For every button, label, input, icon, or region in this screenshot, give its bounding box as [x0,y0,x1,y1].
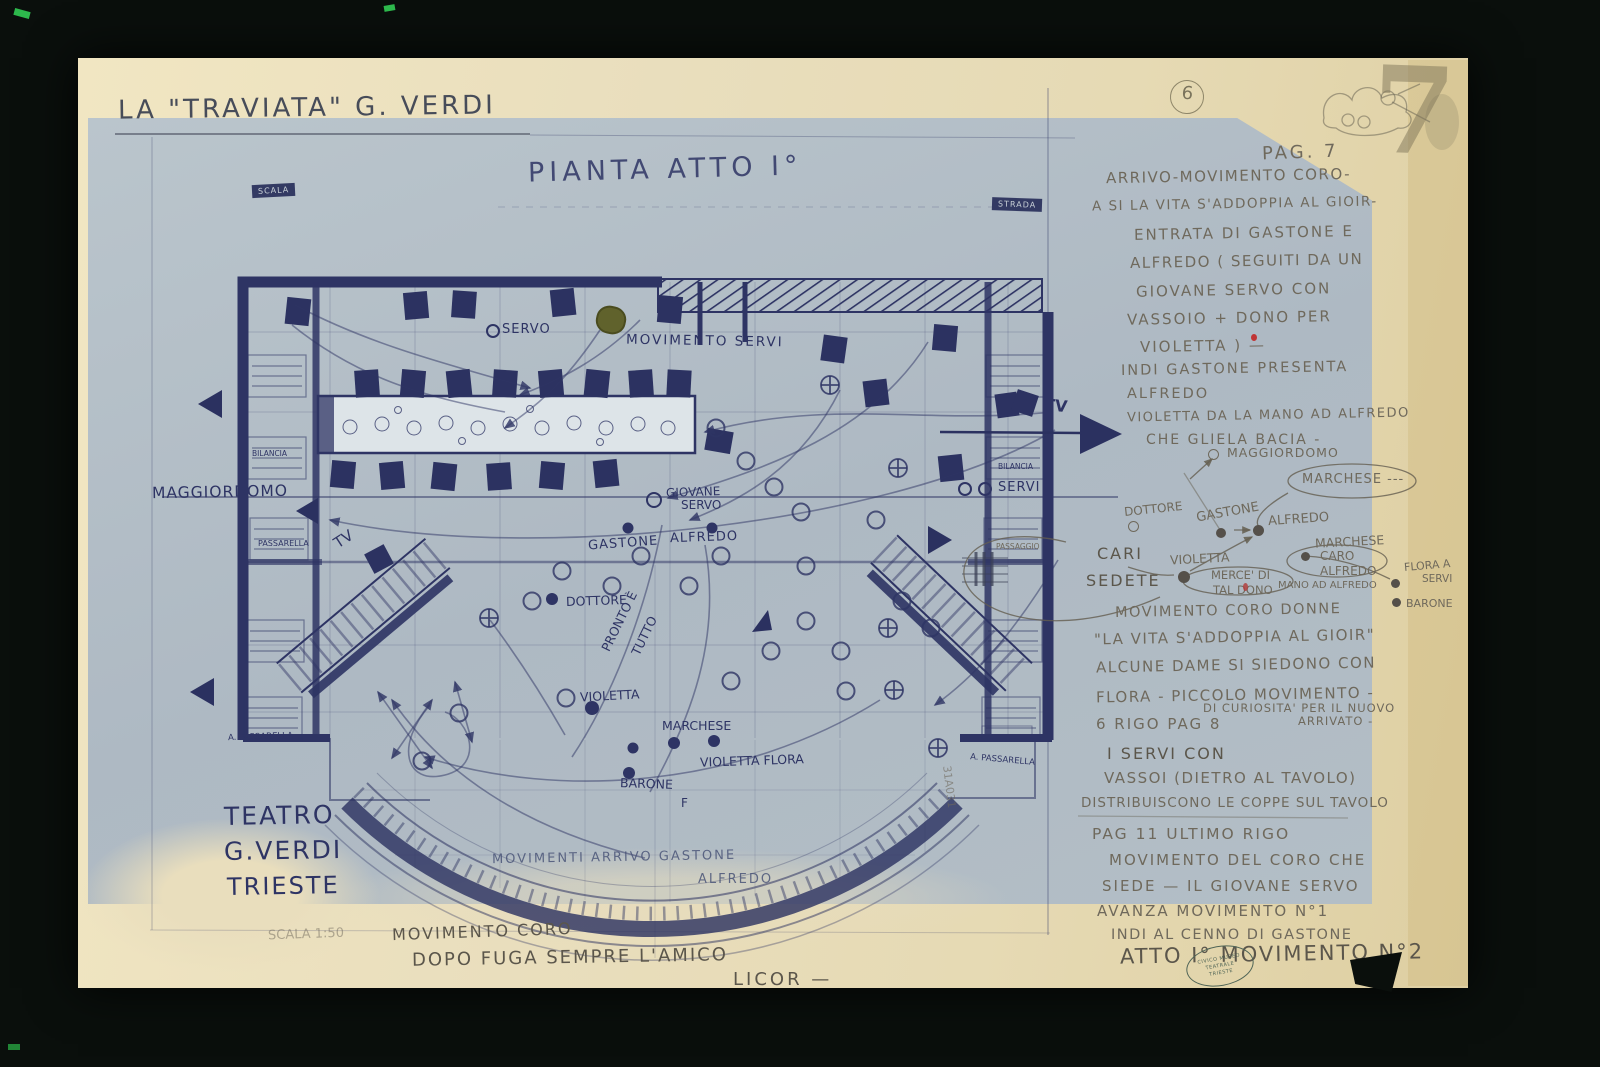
scale-note: SCALA 1:50 [268,927,344,943]
cluster-caro-1: CARO [1320,550,1354,562]
servo-ring-icon [486,324,500,338]
actor-dot-icon [1301,552,1310,561]
note-line: ENTRATA DI GASTONE E [1134,224,1354,243]
note-line: SIEDE — IL GIOVANE SERVO [1102,879,1360,894]
cluster-flora-2: SERVI [1422,574,1452,585]
note-line: ALFREDO [1127,387,1209,402]
cluster-barone: BARONE [1406,598,1453,609]
cluster-cari: CARI [1097,546,1143,562]
passarella-label: PASSARELLA [258,540,309,548]
movimento-servi-label: MOVIMENTO SERVI [626,334,784,350]
servi-ring-icon [958,482,972,496]
pag-label: PAG. 7 [1262,143,1339,164]
tv-right-label: TV [1043,397,1068,415]
plan-title: PIANTA ATTO I° [528,152,803,186]
footer-note-3: LICOR — [733,971,832,989]
bilancia-right-label: BILANCIA [998,463,1033,471]
cluster-merce-1: MERCE' DI [1211,570,1270,582]
actor-dot-icon [1216,528,1226,538]
arrivo-note-2: ALFREDO [698,873,773,886]
actor-dot-icon [1178,571,1190,583]
note-line: VASSOI (DIETRO AL TAVOLO) [1104,771,1357,786]
note-line: VIOLETTA ) — [1140,338,1266,355]
strada-label-box: STRADA [992,197,1043,212]
cluster-violetta: VIOLETTA [1170,551,1230,567]
banquet-table [318,396,695,453]
servo-label: SERVO [502,323,551,336]
actor-dot-icon [1392,598,1401,607]
bilancia-left-label: BILANCIA [252,450,287,458]
giovane-servo-label-2: SERVO [681,499,721,511]
theater-name-3: TRIESTE [227,873,340,899]
note-line: MOVIMENTO DEL CORO CHE [1109,853,1366,868]
servi-label: SERVI [998,481,1041,494]
maggiordomo-label: MAGGIORDOMO [152,484,288,502]
note-line: ALFREDO ( SEGUITI DA UN [1130,252,1364,271]
atto-movement-line: ATTO I° MOVIMENTO N°2 [1120,941,1424,967]
actor-dot-icon [1391,579,1400,588]
cluster-marchese-bubble: MARCHESE --- [1302,473,1404,486]
note-line: GIOVANE SERVO CON [1136,281,1332,299]
giovane-servo-ring-icon [646,492,662,508]
actor-ring-icon [1128,521,1139,532]
note-line: AVANZA MOVIMENTO N°1 [1097,904,1329,919]
page-title: LA "TRAVIATA" G. VERDI [118,92,496,123]
barone-label: BARONE [620,777,673,791]
passarella-bl-label: A. PASSARELLA [228,732,293,743]
page-watermark: 7 [1370,51,1458,174]
note-line: ARRIVATO - [1298,716,1373,728]
note-line: 6 RIGO PAG 8 [1096,717,1221,732]
note-line: VASSOIO + DONO PER [1127,309,1332,328]
violetta-label: VIOLETTA [580,688,640,704]
theater-name-2: G.VERDI [224,837,343,864]
servi-ring-icon [978,482,992,496]
giovane-servo-label-1: GIOVANE [666,485,721,499]
note-line: I SERVI CON [1107,746,1226,762]
note-line: DI CURIOSITA' PER IL NUOVO [1203,703,1395,715]
note-line: PAG 11 ULTIMO RIGO [1092,827,1290,843]
cluster-sedete: SEDETE [1086,573,1161,589]
note-line: ARRIVO-MOVIMENTO CORO- [1106,167,1351,186]
f-mark: F [681,797,688,809]
cluster-caro-2: ALFREDO [1320,565,1376,577]
actor-dot-icon [1253,525,1264,536]
scala-label-box: SCALA [252,183,296,198]
cluster-mano: MANO AD ALFREDO [1278,581,1377,591]
cluster-merce-2: TAL DONO [1213,585,1273,597]
marchese-label: MARCHESE [662,720,731,733]
cluster-maggiordomo: MAGGIORDOMO [1227,447,1339,460]
theater-name-1: TEATRO [224,802,335,829]
passaggio-label: PASSAGGIO [996,543,1040,551]
actor-ring-icon [1208,449,1219,460]
note-line: DISTRIBUISCONO LE COPPE SUL TAVOLO [1081,797,1389,811]
alfredo-label: ALFREDO [670,530,739,545]
